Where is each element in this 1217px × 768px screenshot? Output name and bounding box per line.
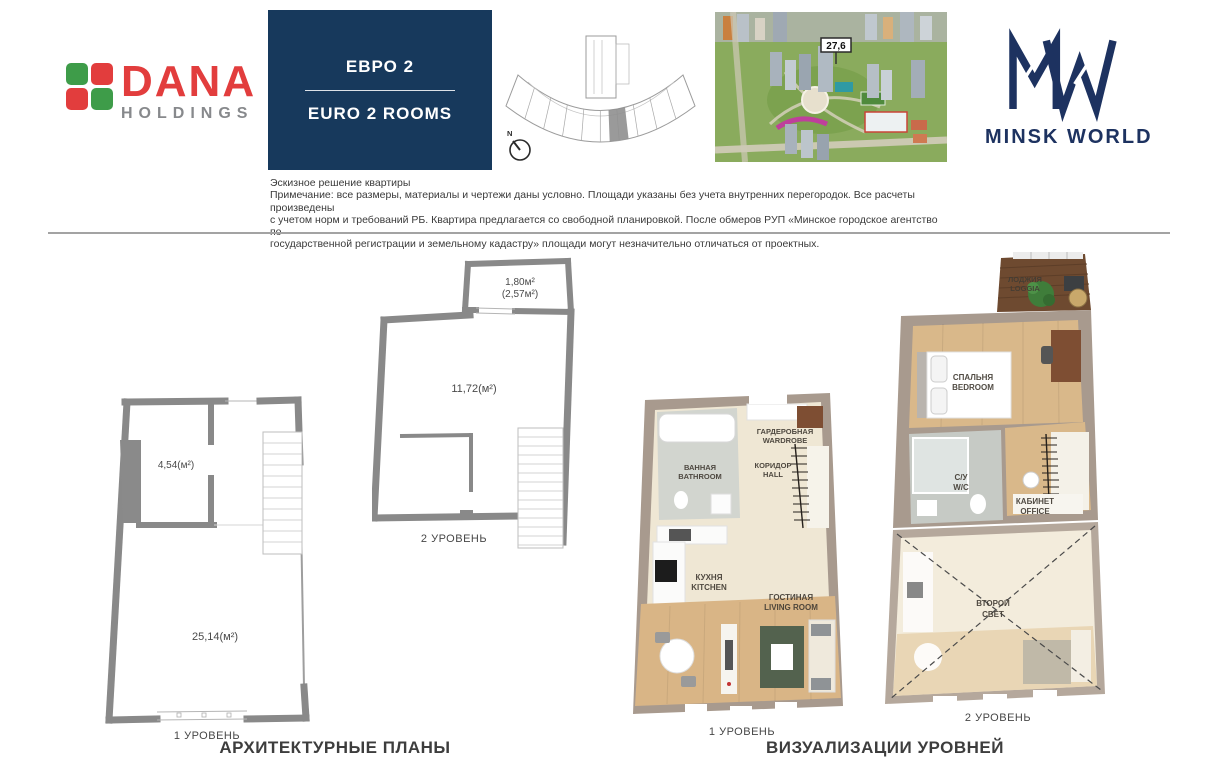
- room-label-wc-en: W/C: [953, 483, 969, 492]
- aerial-svg: 27,6: [715, 12, 947, 162]
- room-label-kitchen-ru: КУХНЯ: [696, 573, 723, 582]
- room-label-hall-en: HALL: [763, 470, 783, 479]
- section-title-plans: АРХИТЕКТУРНЫЕ ПЛАНЫ: [185, 738, 485, 758]
- unit-box-divider: [305, 90, 455, 91]
- room-label-hall-ru: КОРИДОР: [755, 461, 792, 470]
- plan2-balcony-total-label: (2,57м²): [502, 289, 538, 300]
- section-title-viz: ВИЗУАЛИЗАЦИИ УРОВНЕЙ: [735, 738, 1035, 758]
- plan2-area-main-label: 11,72(м²): [451, 383, 496, 395]
- disclaimer-line: Примечание: все размеры, материалы и чер…: [270, 189, 942, 214]
- apartment-flyer-page: DANA HOLDINGS ЕВРО 2 EURO 2 ROOMS: [0, 0, 1217, 768]
- room-label-bedroom-en: BEDROOM: [952, 383, 994, 392]
- room-label-void-en: СВЕТ: [982, 610, 1004, 619]
- room-label-bathroom-ru: ВАННАЯ: [684, 463, 716, 472]
- brand-name: MINSK WORLD: [985, 126, 1140, 149]
- building-marker-label: 27,6: [826, 41, 846, 52]
- room-label-office-ru: КАБИНЕТ: [1016, 497, 1054, 506]
- dana-square-red: [66, 88, 88, 110]
- room-label-loggia-en: LOGGIA: [1010, 284, 1040, 293]
- plan2-caption: 2 УРОВЕНЬ: [421, 533, 487, 545]
- mw-monogram-icon: [1003, 26, 1123, 122]
- dana-holdings-logo: DANA HOLDINGS: [66, 60, 256, 122]
- building-core: [586, 36, 616, 98]
- plan1-area-small-label: 4,54(м²): [158, 460, 194, 471]
- dana-logo-subtext: HOLDINGS: [121, 106, 256, 122]
- room-label-loggia-ru: ЛОДЖИЯ: [1008, 275, 1042, 284]
- disclaimer-line: государственной регистрации и земельному…: [270, 238, 942, 250]
- room-label-living-en: LIVING ROOM: [764, 603, 818, 612]
- unit-title-en: EURO 2 ROOMS: [308, 104, 452, 124]
- unit-title-ru: ЕВРО 2: [346, 57, 414, 77]
- dana-square-green: [91, 88, 113, 110]
- viz-level2: ЛОДЖИЯ LOGGIA СПАЛЬНЯ BEDROOM С/У W/C КА…: [873, 252, 1118, 729]
- plan2-svg: 1,80м² (2,57м²) 11,72(м²) 2 УРОВЕНЬ: [372, 252, 577, 552]
- room-label-kitchen-en: KITCHEN: [691, 583, 727, 592]
- arch-plan-level1: 4,54(м²) 25,14(м²) 1 УРОВЕНЬ: [95, 392, 310, 749]
- sketch-note-title: Эскизное решение квартиры: [270, 177, 942, 189]
- room-label-office-en: OFFICE: [1020, 507, 1050, 516]
- room-label-void-ru: ВТОРОЙ: [976, 599, 1010, 608]
- viz-level1: ГАРДЕРОБНАЯ WARDROBE ВАННАЯ BATHROOM КОР…: [625, 388, 860, 745]
- plan2-balcony-area-label: 1,80м²: [505, 277, 535, 288]
- dana-square-red: [91, 63, 113, 85]
- dana-squares-icon: [66, 63, 113, 110]
- room-label-wc-ru: С/У: [955, 473, 969, 482]
- dana-logo-text: DANA: [121, 60, 256, 104]
- dana-square-green: [66, 63, 88, 85]
- viz2-caption: 2 УРОВЕНЬ: [965, 712, 1031, 724]
- arch-plan-level2: 1,80м² (2,57м²) 11,72(м²) 2 УРОВЕНЬ: [372, 252, 577, 557]
- viz1-caption: 1 УРОВЕНЬ: [709, 726, 775, 738]
- plan1-svg: 4,54(м²) 25,14(м²) 1 УРОВЕНЬ: [95, 392, 310, 744]
- key-plan-svg: N: [498, 28, 703, 170]
- room-label-bedroom-ru: СПАЛЬНЯ: [953, 373, 994, 382]
- plan1-area-main-label: 25,14(м²): [192, 631, 238, 643]
- unit-type-box: ЕВРО 2 EURO 2 ROOMS: [268, 10, 492, 170]
- plan1-stairs: [263, 432, 302, 554]
- building-key-plan: N: [498, 28, 703, 170]
- plan2-stairs: [518, 428, 563, 548]
- room-label-bathroom-en: BATHROOM: [678, 472, 722, 481]
- room-label-living-ru: ГОСТИНАЯ: [769, 593, 813, 602]
- viz2-svg: ЛОДЖИЯ LOGGIA СПАЛЬНЯ BEDROOM С/У W/C КА…: [873, 252, 1118, 724]
- compass-icon: N: [507, 129, 530, 160]
- room-label-wardrobe-ru: ГАРДЕРОБНАЯ: [757, 427, 813, 436]
- room-label-wardrobe-en: WARDROBE: [763, 436, 808, 445]
- viz1-svg: ГАРДЕРОБНАЯ WARDROBE ВАННАЯ BATHROOM КОР…: [625, 388, 860, 740]
- disclaimer-line: с учетом норм и требований РБ. Квартира …: [270, 214, 942, 239]
- north-label: N: [507, 129, 512, 138]
- header-divider: [48, 232, 1170, 234]
- highlighted-unit: [609, 107, 629, 141]
- minsk-world-logo: MINSK WORLD: [985, 26, 1140, 149]
- aerial-render: 27,6: [715, 12, 947, 162]
- disclaimer-note: Эскизное решение квартиры Примечание: вс…: [270, 177, 942, 251]
